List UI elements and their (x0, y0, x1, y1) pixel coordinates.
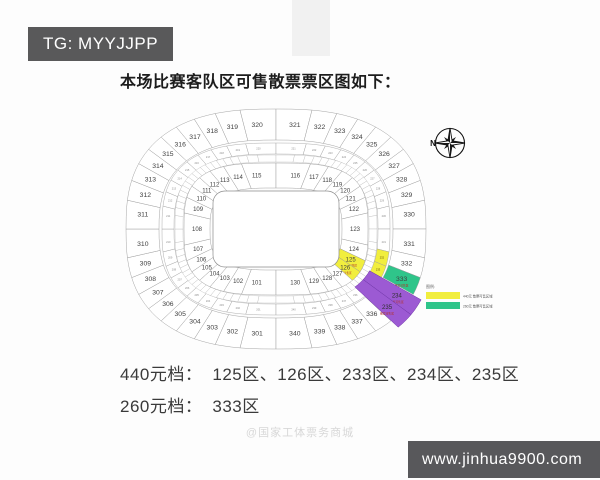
section-326-label: 326 (378, 151, 390, 158)
section-225-label: 225 (353, 161, 358, 165)
section-337-label: 337 (351, 319, 363, 326)
section-330-label: 330 (404, 211, 416, 218)
telegram-badge-text: TG: MYYJJPP (43, 34, 158, 54)
pricing-260-sections: 333区 (212, 397, 259, 416)
section-340-label: 340 (289, 330, 301, 337)
section-332-label: 332 (401, 260, 413, 267)
section-304-label: 304 (189, 319, 201, 326)
section-224-label: 224 (342, 155, 347, 159)
section-112-label: 112 (210, 183, 220, 189)
section-236-label: 236 (353, 293, 358, 297)
section-212-label: 212 (168, 199, 173, 203)
section-339-label: 339 (314, 328, 326, 335)
section-325-label: 325 (366, 142, 378, 149)
section-101-label: 101 (252, 280, 263, 286)
telegram-badge: TG: MYYJJPP (28, 27, 173, 61)
section-201 (246, 303, 276, 315)
section-209-label: 209 (168, 255, 173, 259)
section-317-label: 317 (189, 134, 201, 141)
section-318-label: 318 (207, 128, 219, 135)
section-122-label: 122 (349, 207, 360, 213)
section-206-label: 206 (185, 286, 190, 290)
suite-box (369, 229, 377, 243)
pricing-260-label: 260元档： (120, 397, 202, 416)
section-123-label: 123 (350, 227, 361, 233)
section-320-label: 320 (251, 122, 263, 129)
section-227-label: 227 (370, 176, 375, 180)
photo-watermark: @国家工体票务商城 (160, 424, 440, 440)
section-204-label: 204 (206, 299, 211, 303)
suite-box (293, 295, 305, 302)
website-badge: www.jinhua9900.com (408, 441, 600, 478)
section-129-label: 129 (309, 279, 320, 285)
section-115-label: 115 (252, 174, 262, 180)
section-305-label: 305 (175, 311, 187, 318)
section-239-label: 239 (312, 306, 317, 310)
section-322-label: 322 (314, 124, 326, 131)
section-238-label: 238 (328, 303, 333, 307)
pitch-field (213, 191, 339, 267)
section-308-label: 308 (145, 276, 157, 283)
section-232-label: 232 (380, 255, 385, 259)
section-315-label: 315 (162, 151, 174, 158)
section-124-label: 124 (349, 247, 360, 253)
pricing-line-260: 260元档：333区 (120, 392, 260, 417)
section-216-label: 216 (194, 161, 199, 165)
section-109-label: 109 (193, 207, 204, 213)
pricing-440-sections: 125区、126区、233区、234区、235区 (212, 365, 519, 384)
section-338-label: 338 (334, 325, 346, 332)
website-badge-text: www.jinhua9900.com (422, 451, 582, 469)
page-title: 本场比赛客队区可售散票票区图如下： (120, 68, 401, 92)
section-229-label: 229 (380, 199, 385, 203)
section-321-label: 321 (289, 122, 301, 129)
suite-box (276, 155, 295, 162)
suite-box (258, 155, 277, 162)
section-116-label: 116 (290, 174, 300, 180)
section-210-label: 210 (166, 240, 171, 244)
pricing-440-label: 440元档： (120, 365, 202, 384)
section-125-label: 125 (346, 257, 357, 263)
section-213-label: 213 (172, 186, 177, 190)
section-312-label: 312 (140, 192, 152, 199)
legend-label-1: 260元 散票可售区域 (463, 303, 493, 308)
suite-box (258, 296, 277, 303)
stadium-map-container: 3013023033043053063073083093103113123133… (123, 98, 503, 360)
section-110-label: 110 (197, 197, 207, 203)
legend: 图例:440元 散票可售区域260元 散票可售区域 (426, 283, 493, 309)
legend-swatch-0 (426, 292, 460, 299)
suite-box (276, 296, 295, 303)
section-329-label: 329 (401, 192, 413, 199)
section-240-label: 240 (291, 307, 296, 311)
section-331-label: 331 (404, 241, 416, 248)
section-208-label: 208 (172, 268, 177, 272)
suite-box (175, 229, 183, 243)
legend-title: 图例: (426, 283, 435, 289)
section-202-label: 202 (236, 306, 241, 310)
legend-label-0: 440元 散票可售区域 (463, 293, 493, 298)
section-220 (246, 143, 276, 155)
section-214-label: 214 (177, 176, 182, 180)
section-316-label: 316 (175, 142, 187, 149)
section-218-label: 218 (219, 151, 224, 155)
section-205-label: 205 (194, 293, 199, 297)
section-313-label: 313 (145, 176, 157, 183)
section-226-label: 226 (363, 168, 368, 172)
section-336-label: 336 (366, 311, 378, 318)
section-328-label: 328 (396, 176, 408, 183)
section-237-label: 237 (342, 299, 347, 303)
suite-box (369, 215, 377, 229)
compass-icon (435, 128, 465, 158)
section-107-label: 107 (193, 247, 204, 253)
section-234-label: 234 (392, 293, 403, 299)
section-327-label: 327 (388, 163, 400, 170)
section-333-label: 333 (396, 276, 408, 283)
compass-n-label: N (430, 139, 436, 148)
section-118-label: 118 (322, 178, 332, 184)
section-105-label: 105 (202, 265, 213, 271)
suite-box (175, 215, 183, 229)
section-106-label: 106 (196, 257, 207, 263)
section-231-label: 231 (382, 240, 387, 244)
section-310-label: 310 (137, 241, 149, 248)
section-230-label: 230 (382, 214, 387, 218)
suite-box (247, 155, 259, 162)
section-314-label: 314 (152, 163, 164, 170)
section-203-label: 203 (219, 303, 224, 307)
section-221-label: 221 (291, 147, 296, 151)
section-323-label: 323 (334, 128, 346, 135)
section-228-label: 228 (376, 186, 381, 190)
photo-edge-artifact (292, 0, 330, 56)
section-301-label: 301 (251, 330, 263, 337)
section-114-label: 114 (233, 175, 243, 181)
section-211-label: 211 (166, 214, 171, 218)
legend-swatch-1 (426, 302, 460, 309)
section-219-label: 219 (236, 148, 241, 152)
section-319-label: 319 (227, 124, 239, 131)
section-103-label: 103 (220, 276, 231, 282)
section-220-label: 220 (256, 147, 261, 151)
section-207-label: 207 (177, 278, 182, 282)
section-104-label: 104 (210, 271, 221, 277)
section-215-label: 215 (185, 168, 190, 172)
pricing-line-440: 440元档：125区、126区、233区、234区、235区 (120, 360, 519, 385)
section-307-label: 307 (152, 290, 164, 297)
section-303-label: 303 (207, 325, 219, 332)
section-111-label: 111 (202, 189, 212, 195)
section-235-subtext: 散票可售区 (380, 311, 394, 315)
section-324-label: 324 (351, 134, 363, 141)
section-235-label: 235 (382, 305, 393, 311)
section-223-label: 223 (328, 151, 333, 155)
section-217-label: 217 (206, 155, 211, 159)
section-302-label: 302 (227, 328, 239, 335)
section-102-label: 102 (233, 279, 244, 285)
section-311-label: 311 (137, 211, 148, 218)
section-127-label: 127 (332, 271, 343, 277)
section-130-label: 130 (290, 280, 301, 286)
section-309-label: 309 (140, 260, 152, 267)
section-113-label: 113 (220, 178, 230, 184)
section-108-label: 108 (192, 227, 203, 233)
section-117-label: 117 (309, 175, 319, 181)
section-121-label: 121 (346, 197, 357, 203)
section-233-label: 233 (376, 268, 381, 272)
section-128-label: 128 (322, 276, 333, 282)
section-306-label: 306 (162, 301, 174, 308)
stadium-seating-map: 3013023033043053063073083093103113123133… (123, 98, 503, 360)
section-222-label: 222 (312, 148, 317, 152)
section-201-label: 201 (256, 307, 261, 311)
